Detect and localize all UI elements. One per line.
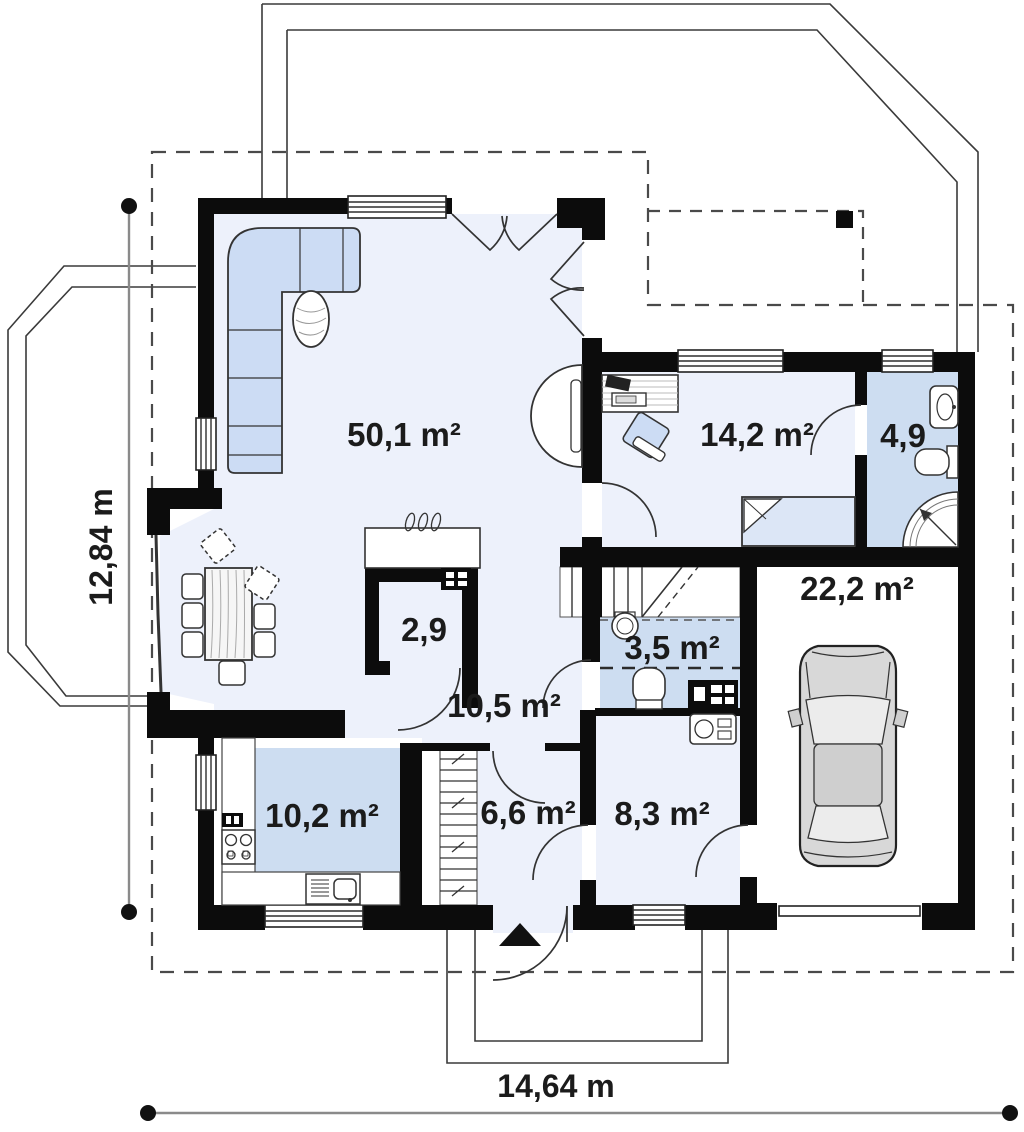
window bbox=[348, 196, 446, 218]
desk bbox=[602, 375, 678, 412]
room-label-hall: 10,5 m² bbox=[447, 687, 561, 724]
pantry-vent bbox=[441, 568, 471, 590]
garage-door bbox=[777, 903, 922, 927]
room-label-wc: 3,5 m² bbox=[624, 629, 719, 666]
dimension-bottom: 14,64 m bbox=[140, 1068, 1018, 1121]
room-label-pantry: 2,9 bbox=[401, 611, 447, 648]
entry-door-floor bbox=[493, 905, 573, 933]
chair bbox=[182, 603, 203, 628]
chair bbox=[254, 632, 275, 657]
stove bbox=[222, 830, 255, 864]
bath-sink bbox=[930, 386, 958, 428]
room-label-garage: 22,2 m² bbox=[800, 570, 914, 607]
room-label-utility: 8,3 m² bbox=[614, 795, 709, 832]
window bbox=[633, 905, 685, 925]
car bbox=[788, 646, 908, 866]
height-dimension-label: 12,84 m bbox=[83, 488, 119, 605]
window bbox=[678, 350, 783, 372]
floor-plan-svg: 12,84 m 14,64 m 50,1 m² 14,2 m² 4,9 22,2… bbox=[0, 0, 1024, 1132]
dimension-left: 12,84 m bbox=[83, 198, 137, 920]
room-label-kitchen: 10,2 m² bbox=[265, 797, 379, 834]
kitchen-sink bbox=[306, 874, 360, 904]
room-label-entry: 6,6 m² bbox=[480, 794, 575, 831]
pouf bbox=[293, 291, 329, 347]
room-label-living: 50,1 m² bbox=[347, 416, 461, 453]
stairs-lower bbox=[440, 748, 477, 905]
switch-box bbox=[222, 813, 243, 827]
bed bbox=[742, 497, 855, 546]
window bbox=[196, 418, 216, 470]
window bbox=[882, 350, 933, 372]
chimney bbox=[836, 211, 853, 228]
wc-cabinet bbox=[688, 680, 738, 710]
room-label-bathroom: 4,9 bbox=[880, 417, 926, 454]
chair bbox=[219, 661, 245, 685]
chair bbox=[182, 632, 203, 657]
room-label-bedroom: 14,2 m² bbox=[700, 416, 814, 453]
wc-toilet bbox=[633, 668, 665, 709]
chair bbox=[182, 574, 203, 599]
window bbox=[196, 755, 216, 810]
width-dimension-label: 14,64 m bbox=[497, 1068, 614, 1104]
boiler bbox=[690, 714, 736, 744]
chair bbox=[254, 604, 275, 629]
window bbox=[265, 905, 363, 927]
entrance-porch bbox=[447, 928, 728, 1063]
floor-plan-page: 12,84 m 14,64 m 50,1 m² 14,2 m² 4,9 22,2… bbox=[0, 0, 1024, 1132]
